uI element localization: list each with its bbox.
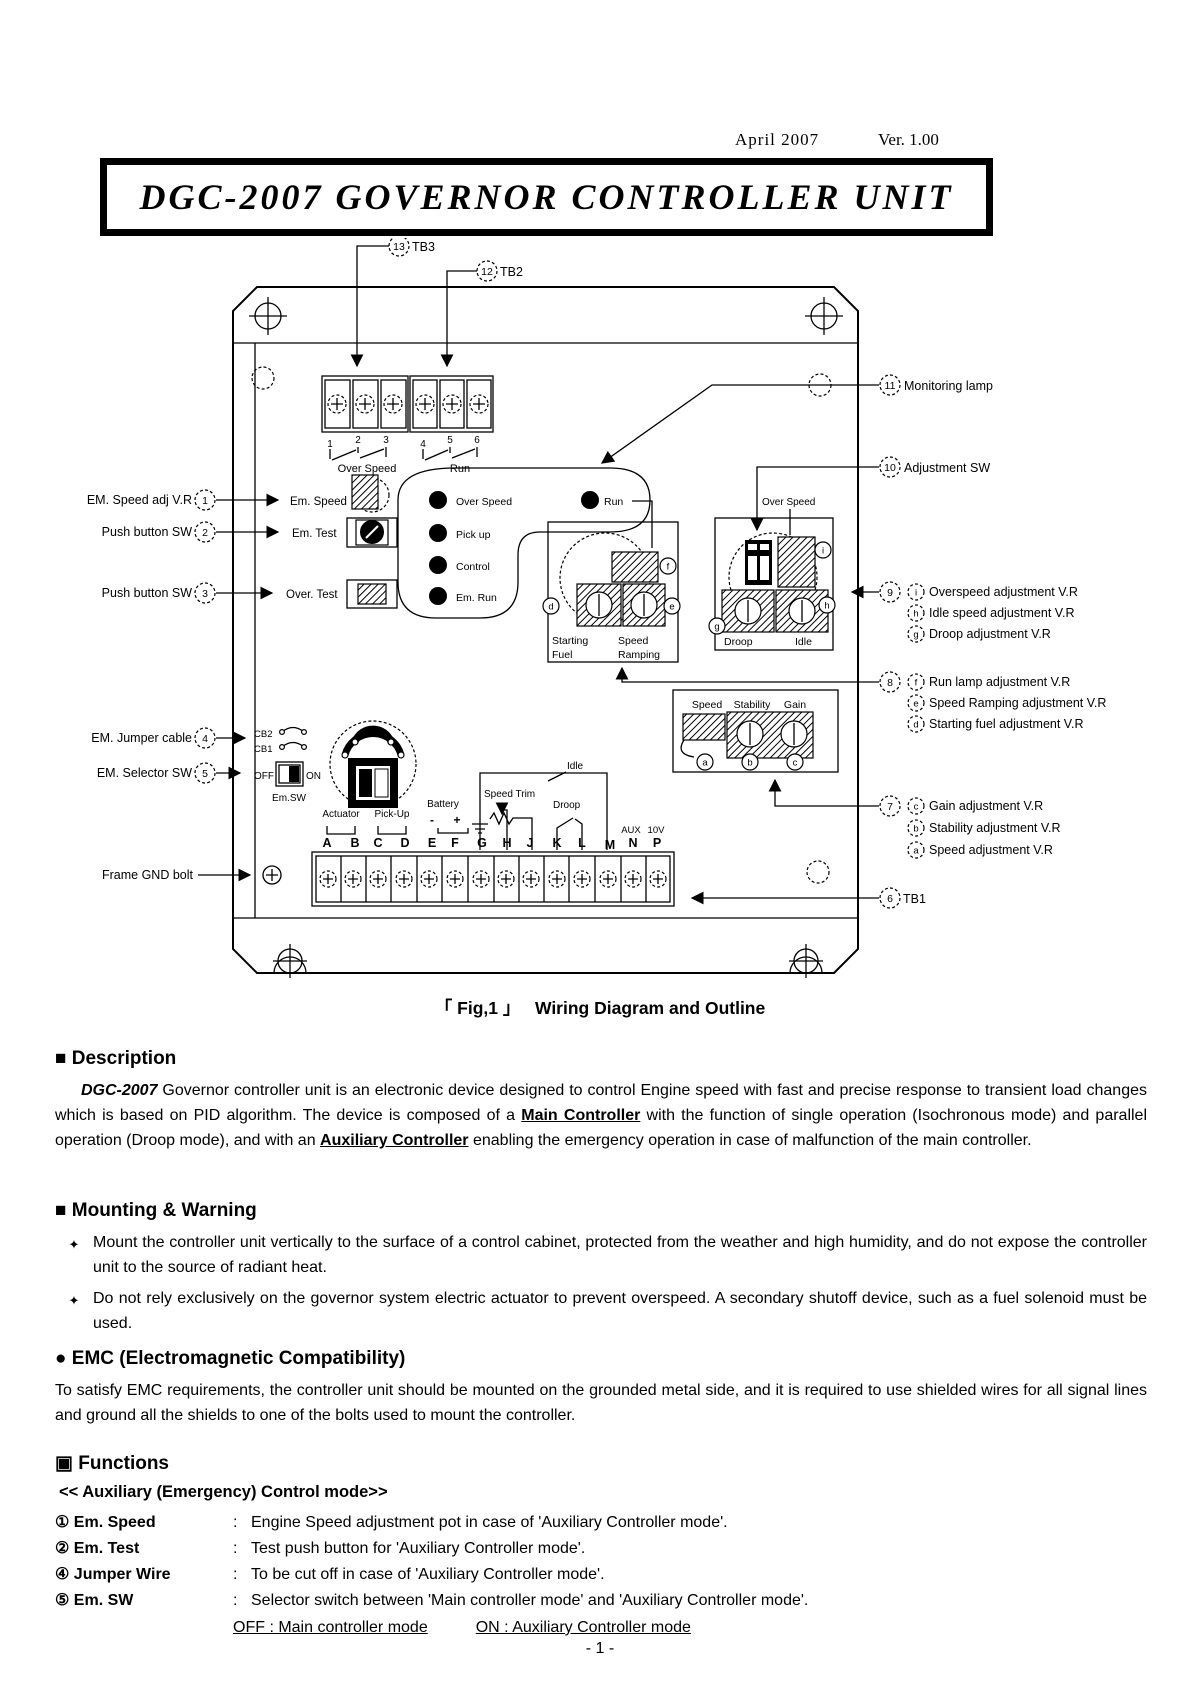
terminal-letters: A B C D E F G H J K L M N P xyxy=(322,836,661,852)
callout-label: Push button SW xyxy=(102,525,193,539)
terminal-letter: G xyxy=(477,836,487,850)
terminal-letter: C xyxy=(373,836,382,850)
led-label: Over Speed xyxy=(456,496,512,508)
mode-off: OFF : Main controller mode xyxy=(233,1619,428,1636)
callout-item: Run lamp adjustment V.R xyxy=(929,675,1070,689)
pot-letter: c xyxy=(793,758,798,769)
callout-number: 4 xyxy=(202,733,208,745)
description-body: DGC-2007 Governor controller unit is an … xyxy=(55,1078,1147,1153)
separator: : xyxy=(233,1510,251,1535)
actuator-connector xyxy=(330,721,416,808)
callout-number: 13 xyxy=(393,241,405,253)
callout-item: Gain adjustment V.R xyxy=(929,799,1043,813)
terminal-letter: F xyxy=(451,836,459,850)
main-controller-term: Main Controller xyxy=(521,1107,640,1124)
callout-label: EM. Selector SW xyxy=(97,766,192,780)
terminal-letter: H xyxy=(502,836,511,850)
over-test-label: Over. Test xyxy=(286,589,338,601)
callout-tb3: 13 TB3 xyxy=(357,238,435,366)
frame-gnd-label: Frame GND bolt xyxy=(102,868,194,882)
section-functions: ▣ Functions << Auxiliary (Emergency) Con… xyxy=(55,1452,1147,1637)
pot-letter: b xyxy=(747,758,752,769)
aux-10v-label: 10V xyxy=(648,825,666,836)
pot-letter: d xyxy=(548,602,553,613)
tb2-terminal-number: 4 xyxy=(420,439,426,450)
run-relay-label: Run xyxy=(450,463,470,475)
terminal-letter: P xyxy=(653,836,661,850)
callout-9: 9 i Overspeed adjustment V.R h Idle spee… xyxy=(852,582,1078,642)
callout-number: 10 xyxy=(884,462,896,474)
callout-number: 1 xyxy=(202,495,208,507)
section-heading: ▣ Functions xyxy=(55,1452,1147,1475)
pot-label: Idle xyxy=(795,636,812,648)
pickup-label: Pick-Up xyxy=(374,809,409,820)
function-desc: Selector switch between 'Main controller… xyxy=(251,1588,1147,1613)
callout-7: 7 c Gain adjustment V.R b Stability adju… xyxy=(775,780,1061,858)
callout-em-test: Push button SW 2 xyxy=(102,522,278,542)
pot-key: i xyxy=(915,588,917,599)
run-led-label: Run xyxy=(604,496,623,508)
callout-label: EM. Speed adj V.R xyxy=(87,493,192,507)
section-emc: ● EMC (Electromagnetic Compatibility) To… xyxy=(55,1348,1147,1428)
warning-text: Do not rely exclusively on the governor … xyxy=(93,1286,1147,1336)
title-box: DGC-2007 GOVERNOR CONTROLLER UNIT xyxy=(100,158,993,236)
mounting-screw-icon xyxy=(249,297,843,978)
tb2-label: TB2 xyxy=(500,265,523,279)
terminal-letter: M xyxy=(605,838,615,852)
em-speed-pot[interactable]: Em. Speed xyxy=(290,475,389,512)
function-desc: Test push button for 'Auxiliary Controll… xyxy=(251,1536,1147,1561)
em-test-label: Em. Test xyxy=(292,528,337,540)
pot-key: b xyxy=(913,824,918,835)
tb3-terminal-block xyxy=(322,376,408,432)
pot-key: a xyxy=(913,846,919,857)
warning-bullet: ✦ Mount the controller unit vertically t… xyxy=(55,1230,1147,1280)
tb2-terminal-number: 6 xyxy=(474,435,480,446)
caption-bracket: 「 xyxy=(435,998,453,1018)
speed-trim-label: Speed Trim xyxy=(484,789,535,800)
droop-switch-label: Droop xyxy=(553,800,581,811)
callout-item: Speed Ramping adjustment V.R xyxy=(929,696,1106,710)
control-led-icon xyxy=(429,556,447,574)
terminal-letter: D xyxy=(400,836,409,850)
warning-bullet: ✦ Do not rely exclusively on the governo… xyxy=(55,1286,1147,1336)
mode-on: ON : Auxiliary Controller mode xyxy=(476,1619,691,1636)
em-jumper-cables[interactable]: CB2 CB1 xyxy=(254,728,306,756)
speed-stability-gain-box: Speed Stability Gain a b c xyxy=(673,690,838,772)
emc-body: To satisfy EMC requirements, the control… xyxy=(55,1378,1147,1428)
callout-item: Idle speed adjustment V.R xyxy=(929,606,1074,620)
terminal-letter: B xyxy=(350,836,359,850)
overspeed-relay-label: Over Speed xyxy=(338,463,397,475)
caption-fig: Fig,1 xyxy=(457,998,498,1018)
tb3-terminal-number: 3 xyxy=(383,435,389,446)
callout-number: 8 xyxy=(887,677,893,689)
speed-pot[interactable] xyxy=(683,714,725,740)
run-led-icon xyxy=(581,491,599,509)
bullet-icon: ✦ xyxy=(55,1230,93,1280)
callout-number: 9 xyxy=(887,587,893,599)
pickup-led-icon xyxy=(429,524,447,542)
em-selector-switch[interactable]: OFF ON Em.SW xyxy=(254,762,321,804)
mode-legend: OFF : Main controller modeON : Auxiliary… xyxy=(233,1619,1147,1637)
section-mounting: ■ Mounting & Warning ✦ Mount the control… xyxy=(55,1200,1147,1342)
battery-plus: + xyxy=(453,813,460,827)
callout-item: Droop adjustment V.R xyxy=(929,627,1051,641)
overspeed-pot[interactable] xyxy=(778,537,815,587)
functions-subheading: << Auxiliary (Emergency) Control mode>> xyxy=(59,1483,1147,1502)
callout-number: 2 xyxy=(202,527,208,539)
wiring-diagram-svg: 1 2 3 4 5 6 Over Speed Run 13 TB3 12 TB2… xyxy=(50,238,1160,988)
em-speed-label: Em. Speed xyxy=(290,496,347,508)
callout-number: 6 xyxy=(887,893,893,905)
callout-number: 5 xyxy=(202,768,208,780)
overspeed-led-icon xyxy=(429,491,447,509)
off-label: OFF xyxy=(254,771,274,782)
tb2-terminal-block xyxy=(410,376,493,432)
separator: : xyxy=(233,1588,251,1613)
callout-item: Overspeed adjustment V.R xyxy=(929,585,1078,599)
cb2-label: CB2 xyxy=(254,729,272,740)
callout-label: EM. Jumper cable xyxy=(91,731,192,745)
manual-page: April 2007 Ver. 1.00 DGC-2007 GOVERNOR C… xyxy=(0,0,1200,1698)
tb1-label: TB1 xyxy=(903,892,926,906)
pot-key: f xyxy=(915,678,918,689)
section-heading: ■ Mounting & Warning xyxy=(55,1200,1147,1222)
starting-fuel-box: d e f Starting Fuel Speed Ramping xyxy=(543,522,680,662)
pot-label: Droop xyxy=(724,636,753,648)
figure-caption: 「 Fig,1 」 Wiring Diagram and Outline xyxy=(0,995,1200,1020)
callout-over-test: Push button SW 3 xyxy=(102,583,272,603)
led-label: Em. Run xyxy=(456,592,497,604)
callout-label: Push button SW xyxy=(102,586,193,600)
callout-number: 7 xyxy=(887,801,893,813)
terminal-letter: E xyxy=(428,836,436,850)
tb3-label: TB3 xyxy=(412,240,435,254)
pot-label: Speed xyxy=(692,699,723,711)
actuator-label: Actuator xyxy=(322,809,360,820)
square-icon: ■ xyxy=(55,1200,66,1221)
bolt-hole-icon xyxy=(807,861,829,883)
callout-jumper-cable: EM. Jumper cable 4 xyxy=(91,728,245,748)
pot-label: Starting xyxy=(552,635,588,647)
on-label: ON xyxy=(306,771,321,782)
aux-label: AUX xyxy=(621,825,641,836)
em-run-led-icon xyxy=(429,587,447,605)
doc-version: Ver. 1.00 xyxy=(878,130,939,150)
pot-label: Ramping xyxy=(618,649,660,661)
doc-date: April 2007 xyxy=(735,130,819,150)
battery-label: Battery xyxy=(427,799,459,810)
droop-idle-box: g h i Droop Idle Over Speed xyxy=(709,497,835,650)
pot-label: Speed xyxy=(618,635,649,647)
pot-key: g xyxy=(913,630,918,641)
pot-letter: f xyxy=(667,562,670,573)
circle-icon: ● xyxy=(55,1348,66,1369)
monitoring-lamp-label: Monitoring lamp xyxy=(904,379,993,393)
em-sw-label: Em.SW xyxy=(272,793,306,804)
tb3-terminal-number: 2 xyxy=(355,435,361,446)
square-icon: ▣ xyxy=(55,1453,73,1474)
caption-text: Wiring Diagram and Outline xyxy=(535,998,765,1018)
terminal-letter: L xyxy=(578,836,586,850)
terminal-letter: K xyxy=(552,836,561,850)
pot-label: Gain xyxy=(784,699,806,711)
function-term: ⑤ Em. SW xyxy=(55,1588,233,1613)
function-desc: Engine Speed adjustment pot in case of '… xyxy=(251,1510,1147,1535)
pot-key: d xyxy=(913,720,918,731)
section-heading: ■ Description xyxy=(55,1048,1147,1070)
aux-controller-term: Auxiliary Controller xyxy=(320,1132,468,1149)
callout-tb2: 12 TB2 xyxy=(447,261,523,366)
bullet-icon: ✦ xyxy=(55,1286,93,1336)
callout-number: 12 xyxy=(481,266,493,278)
adjustment-sw-label: Adjustment SW xyxy=(904,461,990,475)
product-name: DGC-2007 xyxy=(81,1082,157,1099)
warning-text: Mount the controller unit vertically to … xyxy=(93,1230,1147,1280)
pot-letter: h xyxy=(824,601,829,612)
callout-item: Speed adjustment V.R xyxy=(929,843,1053,857)
separator: : xyxy=(233,1536,251,1561)
battery-minus: - xyxy=(430,813,434,827)
function-term: ② Em. Test xyxy=(55,1536,233,1561)
page-number: - 1 - xyxy=(0,1640,1200,1658)
callout-item: Starting fuel adjustment V.R xyxy=(929,717,1084,731)
function-term: ④ Jumper Wire xyxy=(55,1562,233,1587)
pot-letter: i xyxy=(822,546,824,557)
led-label: Control xyxy=(456,561,490,573)
idle-switch-label: Idle xyxy=(567,761,584,772)
caption-bracket: 」 xyxy=(503,998,521,1018)
callout-selector-sw: EM. Selector SW 5 xyxy=(97,763,240,783)
terminal-letter: N xyxy=(628,836,637,850)
section-description: ■ Description DGC-2007 Governor controll… xyxy=(55,1048,1147,1153)
cb1-label: CB1 xyxy=(254,744,272,755)
callout-em-speed: EM. Speed adj V.R 1 xyxy=(87,490,278,510)
tb3-terminal-number: 1 xyxy=(327,439,333,450)
pot-letter: g xyxy=(714,622,719,633)
callout-adjustment-sw: 10 Adjustment SW xyxy=(757,457,990,530)
run-lamp-pot[interactable] xyxy=(612,552,658,582)
function-desc: To be cut off in case of 'Auxiliary Cont… xyxy=(251,1562,1147,1587)
over-test-button[interactable]: Over. Test xyxy=(286,580,397,608)
pot-key: e xyxy=(913,699,918,710)
pot-key: c xyxy=(914,802,919,813)
wiring-diagram: 1 2 3 4 5 6 Over Speed Run 13 TB3 12 TB2… xyxy=(50,238,1160,988)
relay-contacts: 1 2 3 4 5 6 Over Speed Run xyxy=(327,435,480,475)
tb2-terminal-number: 5 xyxy=(447,435,453,446)
frame-gnd: Frame GND bolt xyxy=(102,866,281,884)
callout-number: 3 xyxy=(202,588,208,600)
square-icon: ■ xyxy=(55,1048,66,1069)
functions-list: ① Em. Speed : Engine Speed adjustment po… xyxy=(55,1510,1147,1613)
callout-tb1: 6 TB1 xyxy=(692,888,926,908)
callout-monitoring-lamp: 11 Monitoring lamp xyxy=(602,375,993,463)
led-label: Pick up xyxy=(456,529,491,541)
page-title: DGC-2007 GOVERNOR CONTROLLER UNIT xyxy=(139,176,953,218)
callout-number: 11 xyxy=(885,380,896,392)
pot-letter: e xyxy=(669,602,674,613)
overspeed-pot-label: Over Speed xyxy=(762,497,815,508)
pot-letter: a xyxy=(702,758,708,769)
em-test-button[interactable]: Em. Test xyxy=(292,518,397,547)
pot-label: Fuel xyxy=(552,649,572,661)
section-heading: ● EMC (Electromagnetic Compatibility) xyxy=(55,1348,1147,1370)
function-term: ① Em. Speed xyxy=(55,1510,233,1535)
pot-key: h xyxy=(913,609,918,620)
pot-label: Stability xyxy=(734,699,772,711)
terminal-letter: A xyxy=(322,836,331,850)
callout-item: Stability adjustment V.R xyxy=(929,821,1061,835)
terminal-letter: J xyxy=(527,836,534,850)
tb1-terminal-strip xyxy=(312,852,674,906)
separator: : xyxy=(233,1562,251,1587)
